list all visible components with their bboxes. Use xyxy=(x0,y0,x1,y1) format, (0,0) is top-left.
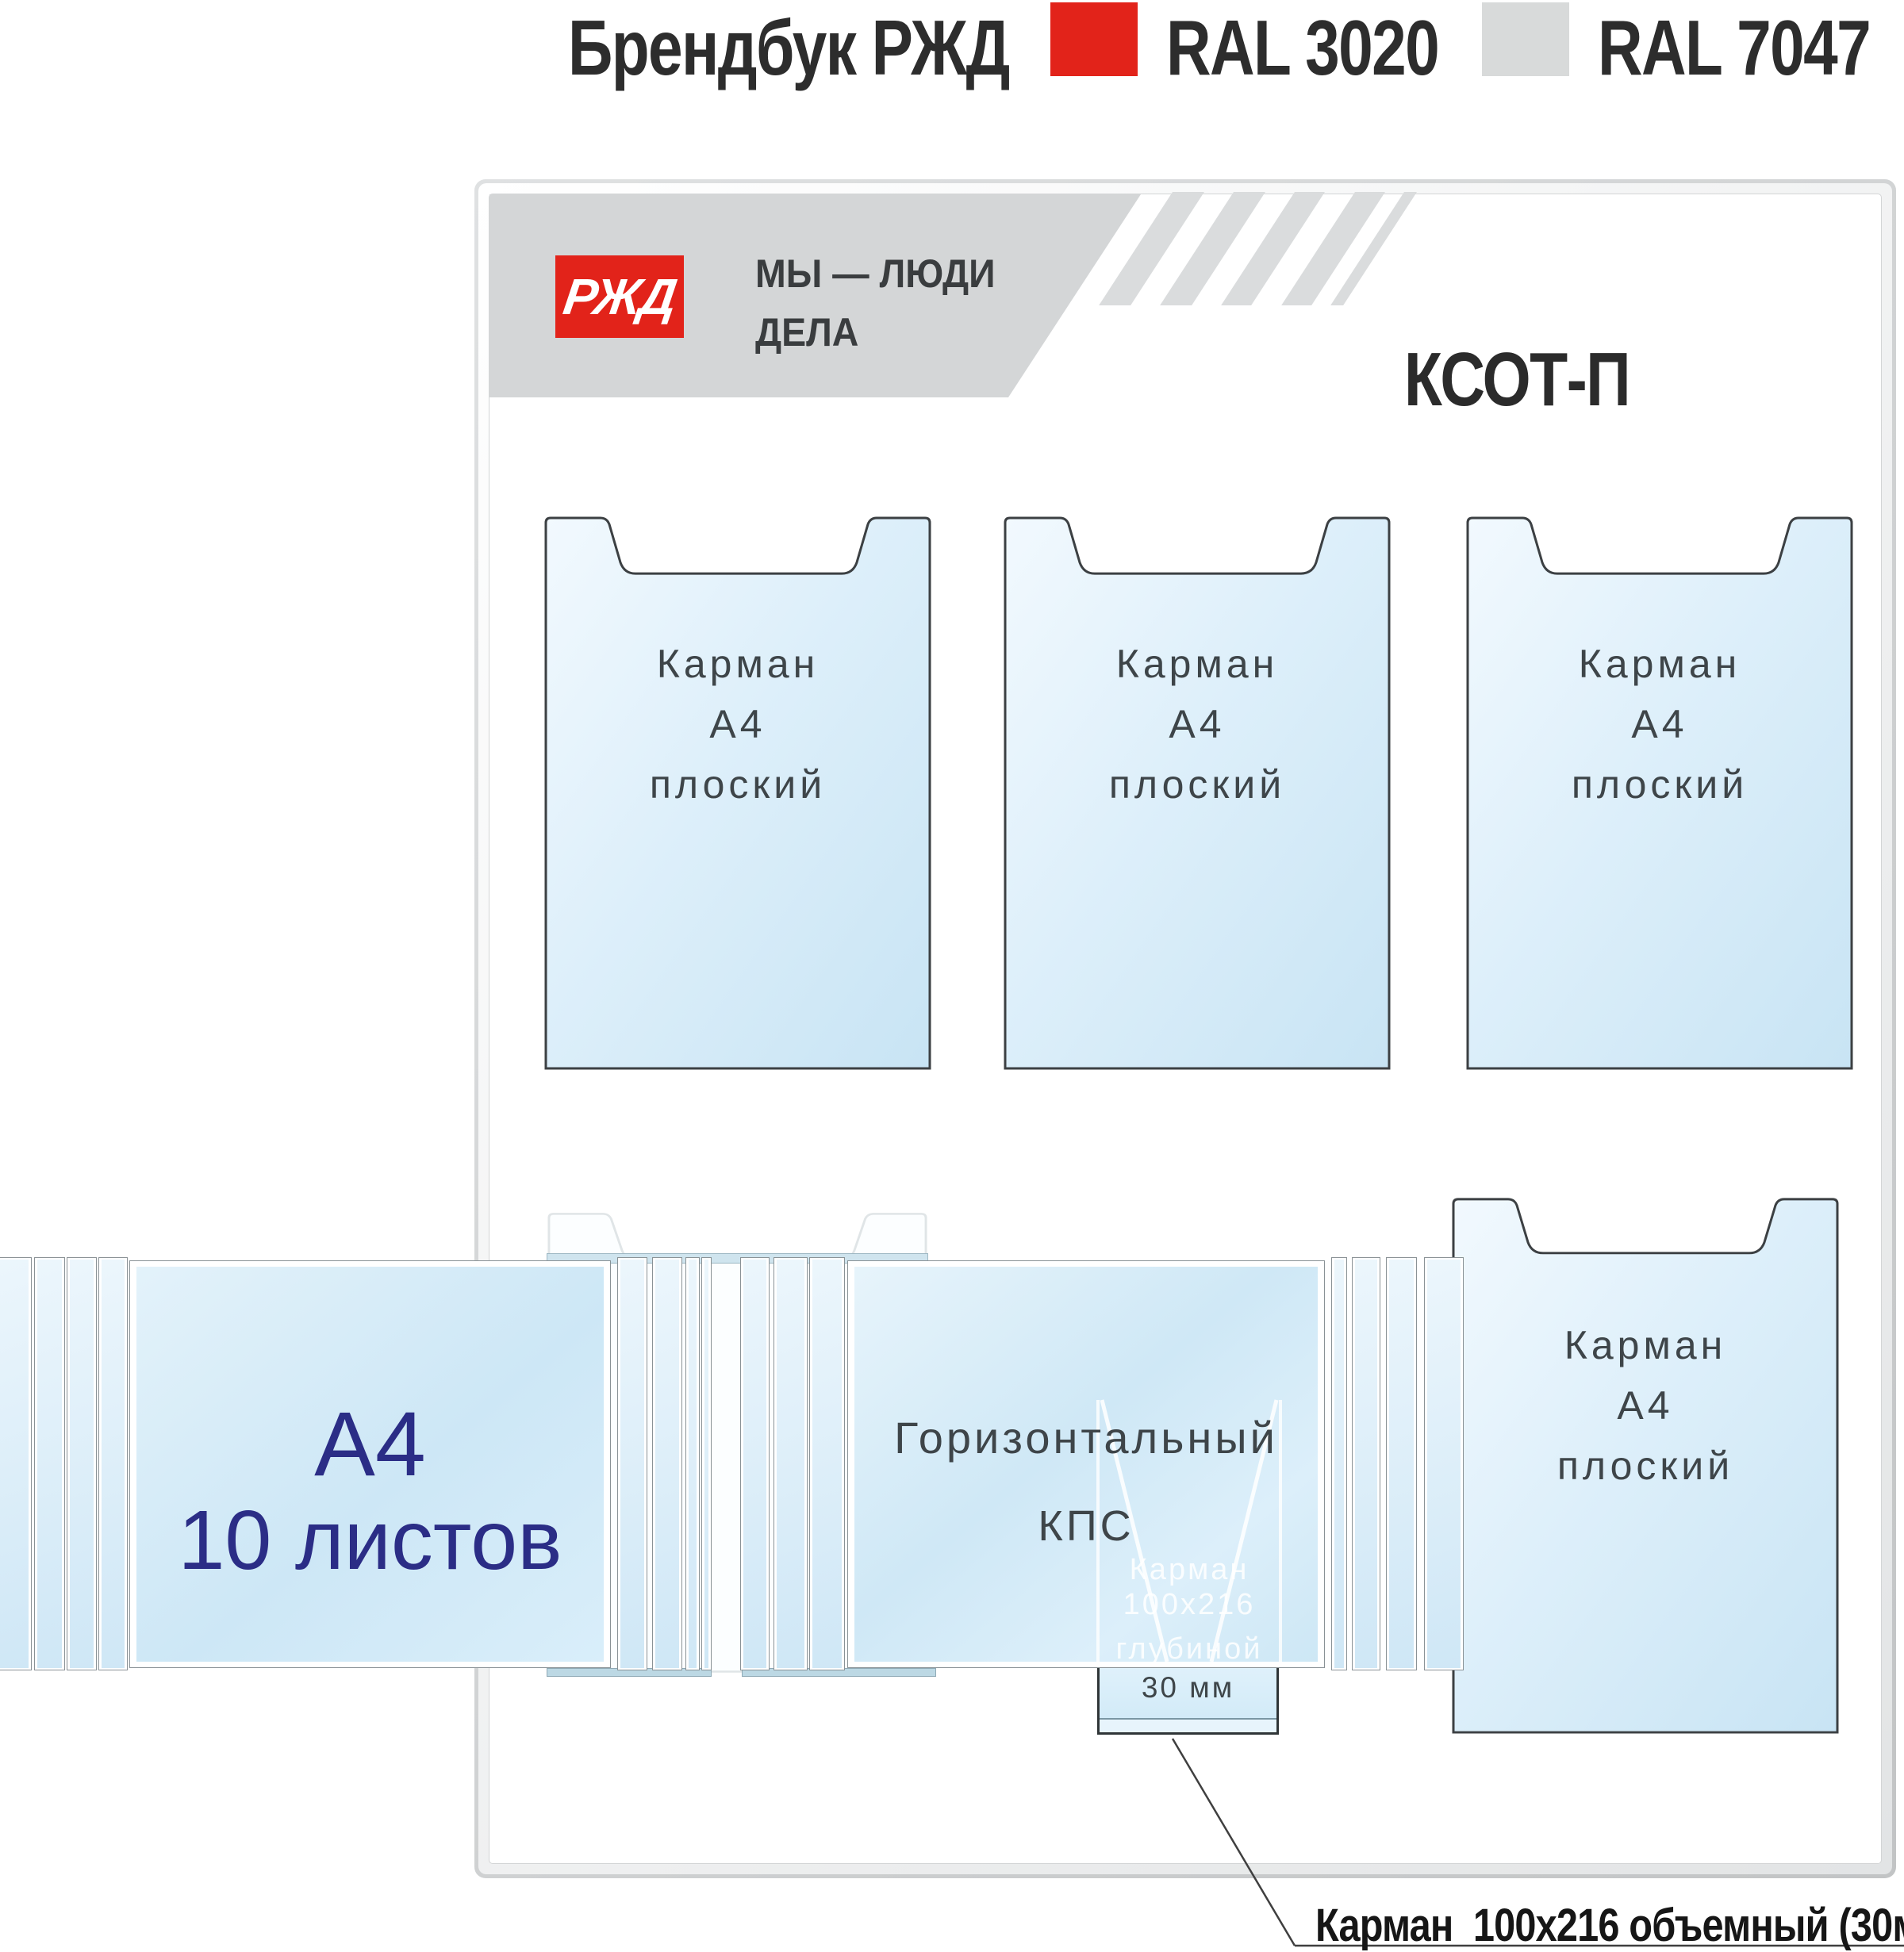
flip-page-edge xyxy=(67,1257,97,1670)
flip-page-edge xyxy=(617,1257,647,1670)
rzd-logo: РЖД xyxy=(555,255,684,338)
flip-page-edge xyxy=(701,1257,712,1670)
ral3020-label: RAL 3020 xyxy=(1166,3,1438,93)
kps-front-sheet: Карман 100х216 глубиной Горизонтальный К… xyxy=(847,1260,1325,1668)
flip-page-edge xyxy=(1424,1257,1464,1670)
pocket-label-line: Карман xyxy=(1003,634,1392,694)
flip-page-edge xyxy=(1352,1257,1380,1670)
flip-page-edge xyxy=(685,1257,700,1670)
pocket-label-line: Карман xyxy=(543,634,932,694)
pocket-label: Карман А4 плоский xyxy=(1003,634,1392,815)
color-swatch-ral3020 xyxy=(1050,2,1138,76)
kps-label-line1: Горизонтальный xyxy=(848,1412,1324,1463)
pocket-a4-flat-2: Карман А4 плоский xyxy=(1003,515,1392,1071)
pocket-a4-flat-3: Карман А4 плоский xyxy=(1465,515,1854,1071)
watermark-line: 100х216 xyxy=(1086,1588,1292,1622)
kps-label-line2: КПС xyxy=(848,1501,1324,1551)
sheet-title: А4 xyxy=(130,1392,610,1497)
pocket-label-line: А4 xyxy=(1003,694,1392,754)
slogan-line2: ДЕЛА xyxy=(755,309,858,355)
pocket-label-line: А4 xyxy=(543,694,932,754)
pocket-label-line: Карман xyxy=(1465,634,1854,694)
flip-page-edge xyxy=(740,1257,770,1670)
pocket-depth-label: 30 мм xyxy=(1100,1671,1276,1705)
color-swatch-ral7047 xyxy=(1482,2,1569,76)
pocket-a4-flat-4: Карман А4 плоский xyxy=(1451,1196,1840,1735)
flip-page-edge xyxy=(98,1257,128,1670)
pocket-label-line: плоский xyxy=(543,754,932,815)
pocket-label: Карман А4 плоский xyxy=(1451,1315,1840,1496)
watermark-line: Карман xyxy=(1086,1553,1292,1587)
flip-page-edge xyxy=(34,1257,65,1670)
flip-page-edge xyxy=(0,1257,32,1670)
pocket-label-line: А4 xyxy=(1465,694,1854,754)
flip-page-edge xyxy=(1331,1257,1347,1670)
ral7047-label: RAL 7047 xyxy=(1598,3,1870,93)
pocket-label-line: плоский xyxy=(1451,1436,1840,1496)
sheet-subtitle: 10 листов xyxy=(130,1493,610,1589)
pocket-label: Карман А4 плоский xyxy=(1465,634,1854,815)
callout-label: Карман 100х216 объемный (30мм) xyxy=(1315,1899,1904,1952)
page-title: Брендбук РЖД xyxy=(568,3,1009,93)
board-title: КСОТ-П xyxy=(1387,336,1647,424)
flipbook-front-sheet: А4 10 листов xyxy=(129,1260,611,1668)
flip-page-edge xyxy=(809,1257,845,1670)
pocket-label-line: плоский xyxy=(1465,754,1854,815)
rzd-logo-glyph: РЖД xyxy=(560,267,679,326)
pocket-label-line: Карман xyxy=(1451,1315,1840,1375)
slogan-line1: МЫ — ЛЮДИ xyxy=(755,251,996,297)
flip-page-edge xyxy=(1386,1257,1417,1670)
pocket-label-line: плоский xyxy=(1003,754,1392,815)
flip-page-edge xyxy=(652,1257,682,1670)
pocket-a4-flat-1: Карман А4 плоский xyxy=(543,515,932,1071)
flip-page-edge xyxy=(773,1257,808,1670)
pocket-label: Карман А4 плоский xyxy=(543,634,932,815)
watermark-line: глубиной xyxy=(1086,1632,1292,1666)
pocket-label-line: А4 xyxy=(1451,1375,1840,1436)
